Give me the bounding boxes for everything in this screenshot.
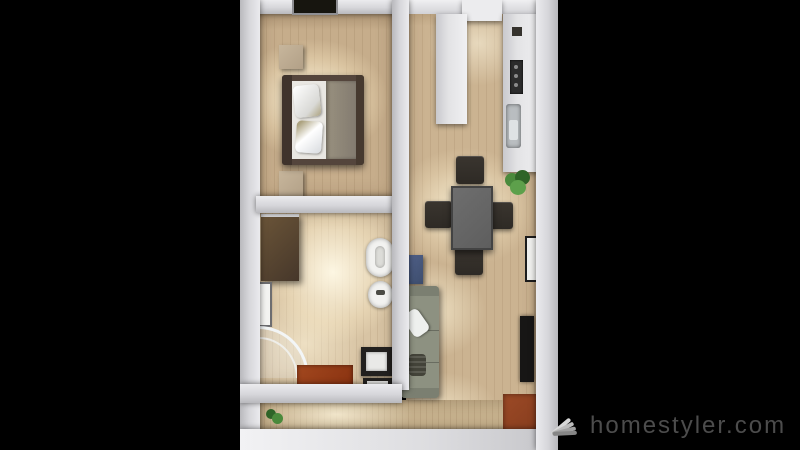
bathroom-sink	[366, 238, 394, 277]
kitchen-island	[436, 14, 467, 124]
bed-headboard	[282, 75, 292, 165]
potted-plant	[503, 169, 533, 197]
left-wall	[240, 0, 260, 450]
bedroom-bathroom-wall	[256, 196, 394, 213]
washer-lid	[366, 352, 387, 371]
plant-leaf	[272, 413, 283, 424]
wall-vent	[512, 27, 522, 36]
render-canvas: homestyler.com	[0, 0, 800, 450]
skylight-window	[292, 0, 338, 15]
logo-layer	[553, 431, 577, 436]
bed	[282, 75, 364, 165]
wall-tv	[520, 316, 534, 382]
toilet	[368, 281, 393, 308]
bathroom-bottom-wall	[240, 384, 402, 403]
entry-plant	[265, 406, 285, 428]
divider-wall	[392, 0, 409, 390]
nightstand-top	[279, 45, 303, 69]
sink-basin	[375, 246, 385, 268]
kitchen-counter	[503, 14, 539, 172]
watermark: homestyler.com	[552, 412, 786, 440]
range-hood	[462, 0, 502, 21]
kitchen-sink-basin	[509, 120, 518, 140]
plant-leaf	[510, 180, 526, 195]
dining-chair-top	[456, 156, 484, 184]
cooktop-burners	[514, 65, 518, 69]
bed-duvet	[326, 81, 356, 159]
dining-chair-bottom	[455, 246, 483, 275]
bed-pillow-2	[295, 120, 323, 154]
cooktop	[510, 60, 523, 94]
homestyler-logo-icon	[552, 414, 580, 438]
toilet-buttons	[376, 290, 385, 295]
washing-machine	[361, 347, 392, 376]
right-wall	[536, 0, 558, 450]
bottom-wall	[240, 429, 552, 450]
dining-chair-left	[425, 201, 452, 228]
kitchen-sink	[506, 104, 521, 148]
nightstand-bottom	[279, 171, 303, 197]
bathroom-vanity	[261, 214, 299, 281]
sofa-pillow-dark	[409, 354, 426, 376]
bed-footboard	[356, 75, 364, 165]
entry-corridor-floor	[258, 400, 538, 432]
watermark-text: homestyler.com	[590, 412, 786, 440]
dining-table	[451, 186, 493, 250]
bed-pillow-1	[292, 84, 321, 119]
